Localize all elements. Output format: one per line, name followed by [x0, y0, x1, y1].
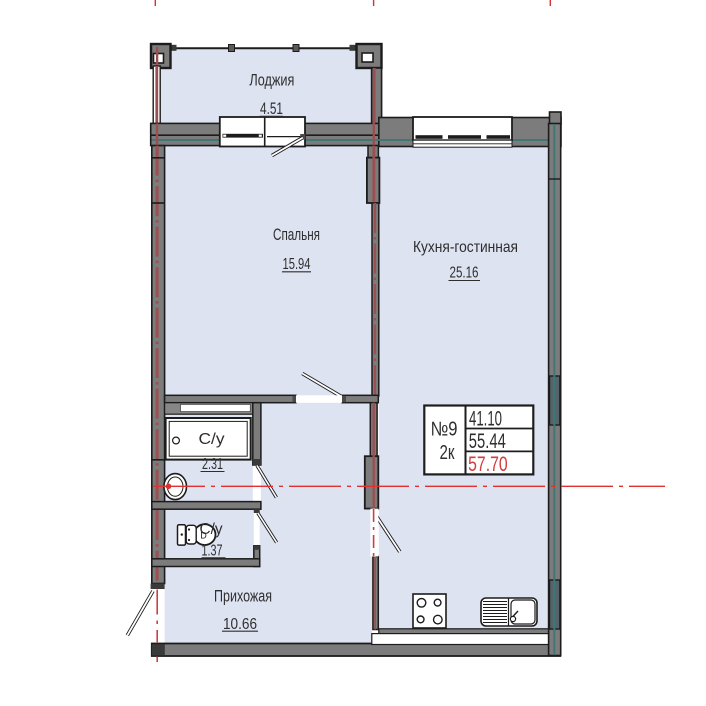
svg-text:55.44: 55.44	[469, 430, 506, 453]
svg-text:41.10: 41.10	[469, 408, 502, 431]
svg-text:57.70: 57.70	[468, 453, 508, 476]
svg-text:1.37: 1.37	[202, 543, 223, 560]
svg-text:Спальня: Спальня	[273, 226, 320, 244]
svg-text:Кухня-гостинная: Кухня-гостинная	[413, 239, 518, 256]
svg-text:Прихожая: Прихожая	[214, 588, 272, 606]
svg-text:С/у: С/у	[199, 431, 225, 448]
svg-text:2.31: 2.31	[202, 456, 223, 473]
svg-text:С/у: С/у	[200, 521, 223, 538]
svg-text:4.51: 4.51	[260, 100, 283, 118]
svg-text:25.16: 25.16	[450, 265, 479, 282]
svg-text:10.66: 10.66	[223, 616, 257, 633]
svg-text:15.94: 15.94	[283, 256, 311, 273]
svg-text:Лоджия: Лоджия	[249, 72, 294, 90]
svg-text:2к: 2к	[440, 442, 455, 464]
svg-text:№9: №9	[431, 419, 458, 441]
